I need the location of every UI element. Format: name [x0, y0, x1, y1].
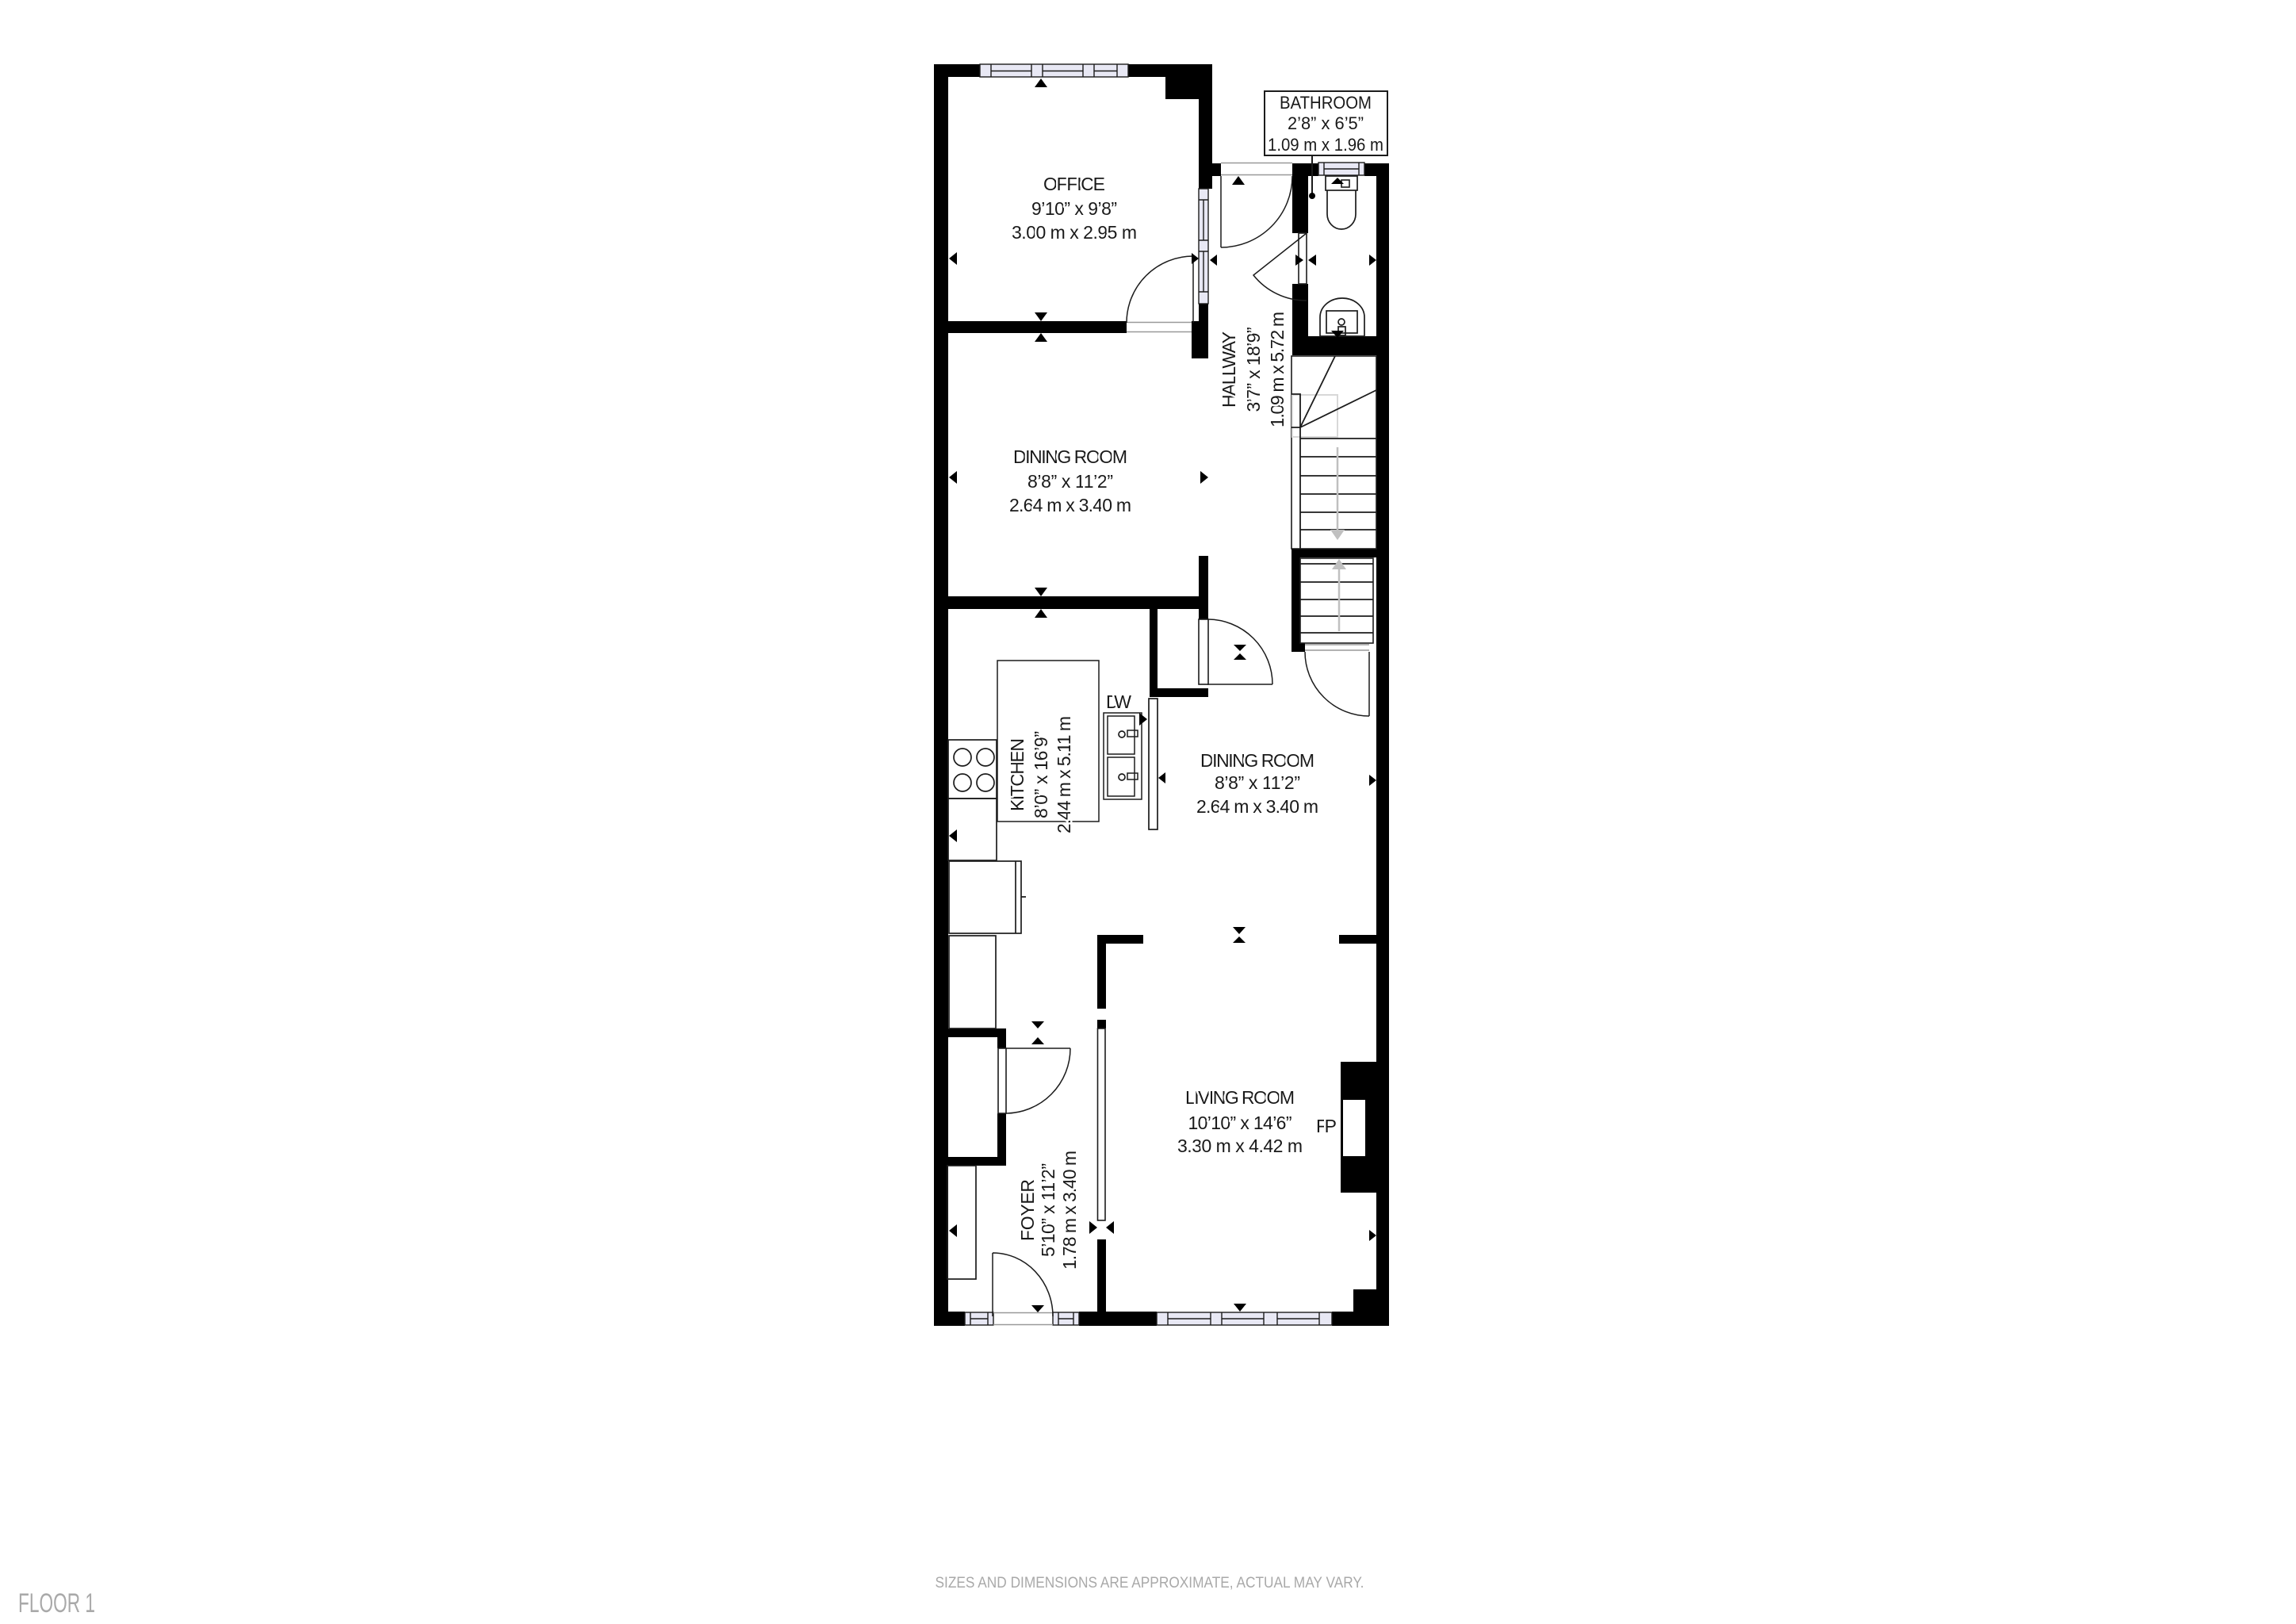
svg-text:HALLWAY: HALLWAY: [1219, 331, 1239, 408]
svg-text:FP: FP: [1316, 1116, 1337, 1136]
svg-text:DINING ROOM: DINING ROOM: [1200, 750, 1314, 771]
svg-text:SIZES AND DIMENSIONS ARE APPRO: SIZES AND DIMENSIONS ARE APPROXIMATE, AC…: [936, 1575, 1364, 1591]
svg-text:9’10” x 9’8”: 9’10” x 9’8”: [1031, 198, 1117, 219]
svg-text:5’10” x 11’2”: 5’10” x 11’2”: [1038, 1163, 1058, 1257]
svg-text:3’7” x 18’9”: 3’7” x 18’9”: [1243, 327, 1264, 412]
svg-text:2.64 m x 3.40 m: 2.64 m x 3.40 m: [1009, 495, 1131, 515]
svg-text:BATHROOM: BATHROOM: [1280, 93, 1372, 113]
svg-text:8’8” x 11’2”: 8’8” x 11’2”: [1215, 772, 1300, 793]
svg-text:8’0” x 16’9”: 8’0” x 16’9”: [1031, 731, 1051, 818]
svg-text:2.64 m x 3.40 m: 2.64 m x 3.40 m: [1196, 796, 1318, 817]
svg-text:2.44 m x 5.11 m: 2.44 m x 5.11 m: [1054, 716, 1074, 833]
svg-text:FLOOR 1: FLOOR 1: [18, 1588, 95, 1618]
svg-text:1.09 m x 5.72 m: 1.09 m x 5.72 m: [1267, 312, 1288, 427]
svg-text:LIVING ROOM: LIVING ROOM: [1185, 1087, 1295, 1108]
svg-text:OFFICE: OFFICE: [1043, 174, 1105, 194]
svg-text:3.00 m x 2.95 m: 3.00 m x 2.95 m: [1012, 222, 1137, 243]
svg-text:KITCHEN: KITCHEN: [1007, 738, 1027, 811]
svg-text:3.30 m x 4.42 m: 3.30 m x 4.42 m: [1177, 1136, 1303, 1156]
svg-text:1.09 m x 1.96 m: 1.09 m x 1.96 m: [1268, 135, 1383, 155]
svg-text:FOYER: FOYER: [1017, 1179, 1038, 1241]
svg-text:2’8” x 6’5”: 2’8” x 6’5”: [1288, 113, 1364, 133]
svg-text:DW: DW: [1106, 691, 1131, 712]
svg-text:10’10” x 14’6”: 10’10” x 14’6”: [1188, 1113, 1292, 1133]
svg-text:1.78 m x 3.40 m: 1.78 m x 3.40 m: [1059, 1151, 1080, 1270]
svg-text:DINING ROOM: DINING ROOM: [1013, 446, 1127, 467]
svg-text:8’8” x 11’2”: 8’8” x 11’2”: [1027, 471, 1113, 492]
